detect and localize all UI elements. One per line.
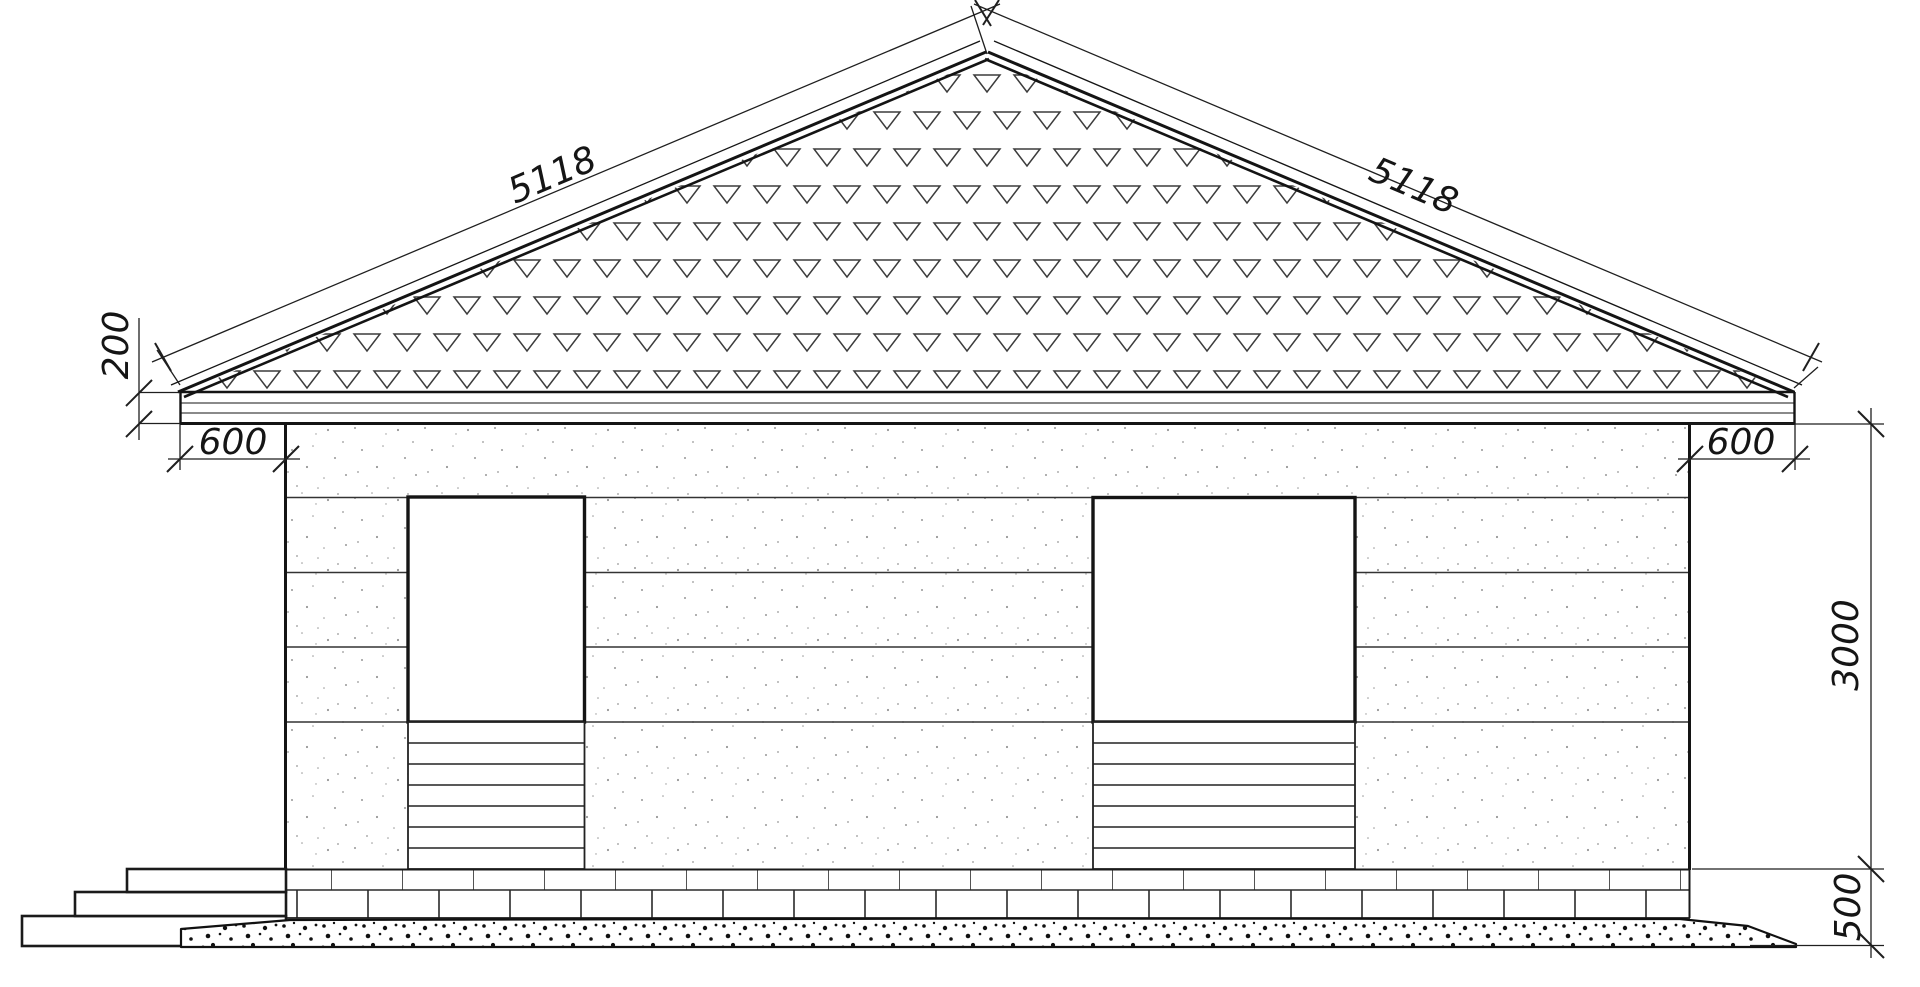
roof-shingle-field <box>180 50 1795 395</box>
label-eave-overhang-right: 600 <box>1707 422 1776 463</box>
louver-panel-right <box>1093 722 1355 869</box>
elevation-drawing-canvas: 5118 5118 200 600 600 3000 500 <box>0 0 1920 987</box>
window-left <box>408 497 585 722</box>
step-middle <box>75 892 286 916</box>
label-eave-overhang-left: 600 <box>199 422 268 463</box>
plinth-brick-course <box>285 869 1690 918</box>
step-top <box>127 869 286 892</box>
foundation-outline <box>181 919 1796 948</box>
label-base-height: 500 <box>1828 873 1869 942</box>
tick <box>983 0 999 25</box>
louver-panel-left <box>408 722 585 869</box>
label-roof-slope-right: 5118 <box>1363 150 1463 224</box>
window-right <box>1093 498 1355 723</box>
foundation-strip <box>181 919 1796 948</box>
extension-line <box>1794 367 1818 388</box>
fascia-band <box>180 392 1795 424</box>
tick <box>155 343 171 371</box>
tick <box>1803 343 1819 371</box>
label-wall-height: 3000 <box>1826 599 1867 691</box>
label-roof-slope-left: 5118 <box>502 139 602 213</box>
label-roof-edge-height: 200 <box>96 311 137 380</box>
gable-roof <box>171 41 1802 397</box>
